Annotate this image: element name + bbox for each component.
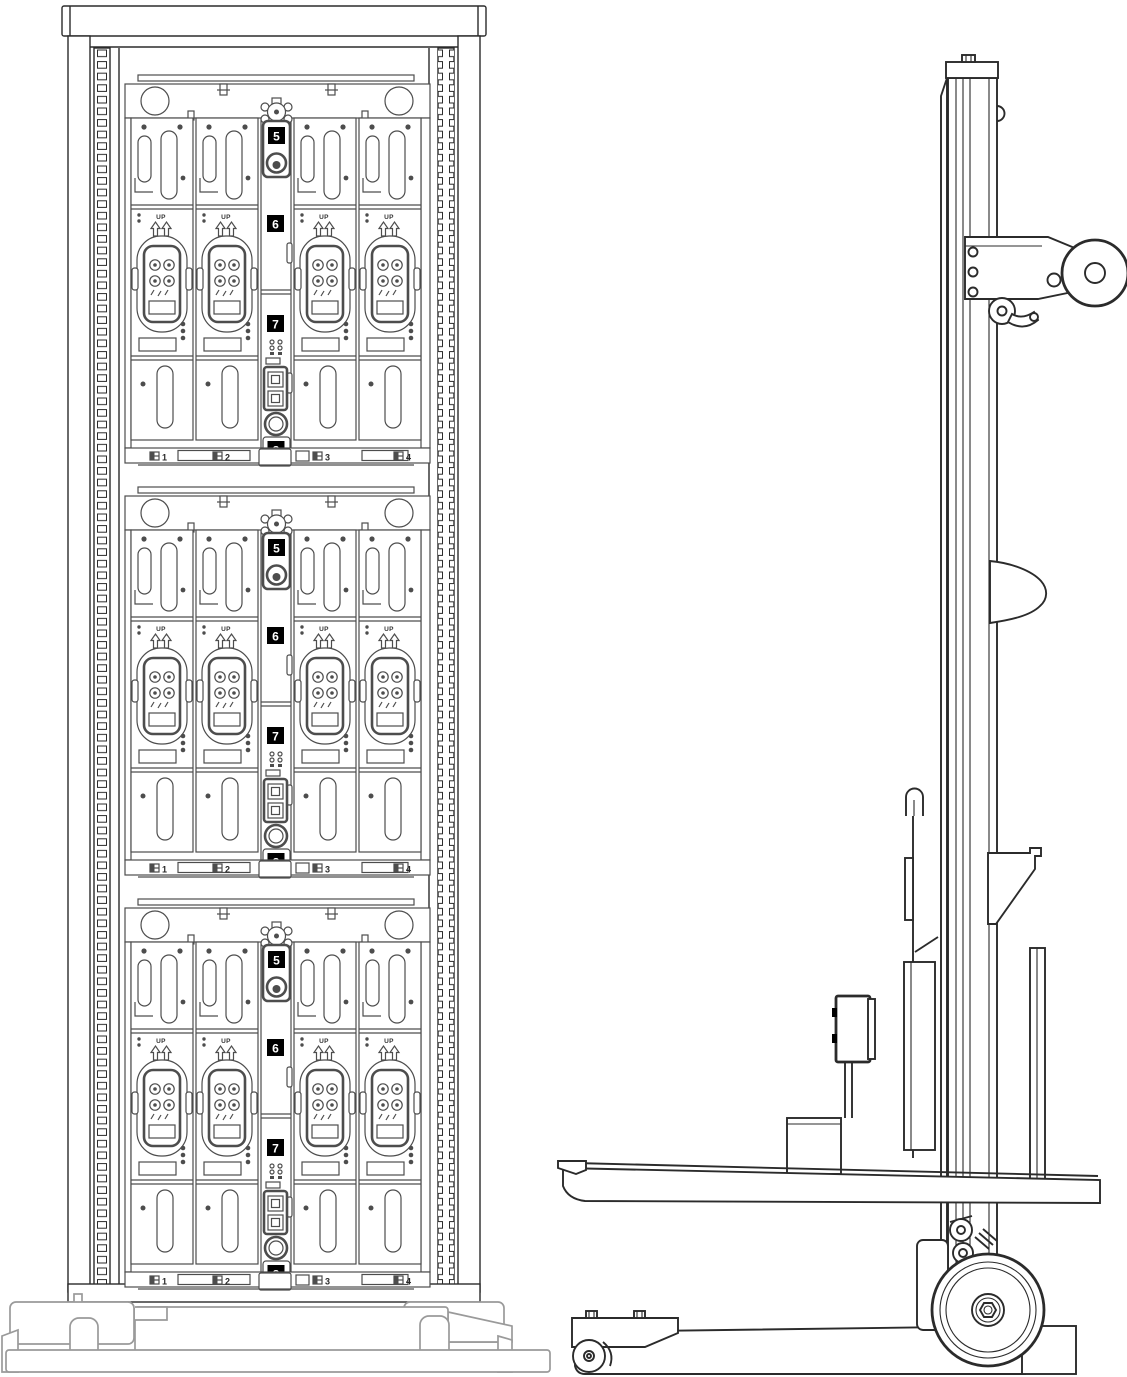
rack-post-left — [68, 36, 90, 1292]
technical-diagram: UP — [0, 0, 1127, 1377]
server-rack — [2, 6, 550, 1372]
rear-wheel — [932, 1254, 1044, 1366]
rack-post-right — [458, 36, 480, 1292]
chassis-3 — [125, 899, 430, 1290]
hub-nut — [980, 1303, 996, 1317]
pedestal — [787, 1118, 841, 1174]
lift-tool — [558, 55, 1127, 1374]
mast-knob — [997, 106, 1005, 121]
chassis-1 — [125, 75, 430, 466]
winch-assembly — [965, 237, 1127, 327]
chassis-2 — [125, 487, 430, 878]
control-box — [787, 996, 875, 1174]
rack-base — [2, 1294, 550, 1372]
handle-grip — [990, 561, 1046, 623]
support-bracket — [988, 848, 1041, 924]
diagram-canvas: UP — [0, 0, 1127, 1377]
